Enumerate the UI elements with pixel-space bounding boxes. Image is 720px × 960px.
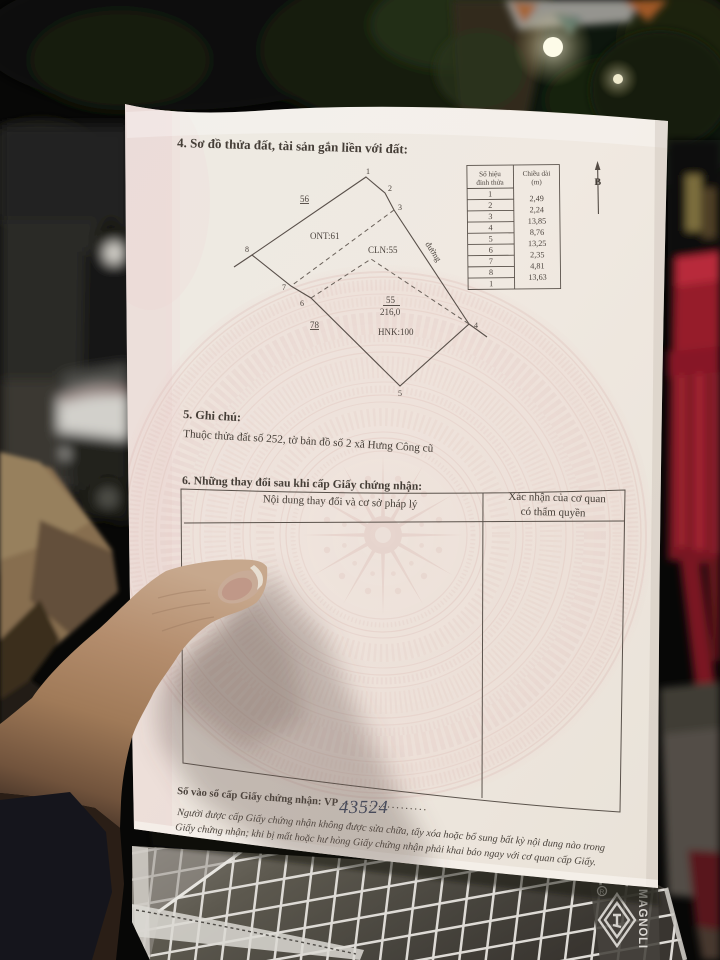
svg-text:4: 4 xyxy=(488,223,492,232)
svg-text:2: 2 xyxy=(488,201,492,210)
svg-text:Chiều dài: Chiều dài xyxy=(523,170,551,178)
svg-text:5: 5 xyxy=(398,389,402,398)
svg-text:4,81: 4,81 xyxy=(530,261,544,270)
svg-text:2,35: 2,35 xyxy=(530,250,544,259)
svg-text:1: 1 xyxy=(366,167,370,176)
svg-text:2: 2 xyxy=(388,184,392,193)
svg-text:HNK:100: HNK:100 xyxy=(378,327,414,337)
svg-text:8: 8 xyxy=(245,245,249,254)
svg-text:7: 7 xyxy=(489,257,493,266)
svg-text:13,63: 13,63 xyxy=(528,273,547,282)
svg-text:8: 8 xyxy=(489,268,493,277)
svg-text:CLN:55: CLN:55 xyxy=(368,245,398,255)
svg-text:4: 4 xyxy=(474,321,478,330)
svg-text:78: 78 xyxy=(310,320,320,330)
svg-text:1: 1 xyxy=(489,279,493,288)
svg-text:6: 6 xyxy=(300,299,304,308)
svg-text:55: 55 xyxy=(386,295,396,305)
svg-text:2,24: 2,24 xyxy=(530,205,544,214)
svg-text:5: 5 xyxy=(489,234,493,243)
svg-text:7: 7 xyxy=(282,283,286,292)
svg-text:B: B xyxy=(594,177,601,188)
svg-text:có thẩm quyền: có thẩm quyền xyxy=(521,506,587,520)
svg-text:56: 56 xyxy=(300,194,310,204)
svg-text:216,0: 216,0 xyxy=(380,307,401,317)
svg-text:ONT:61: ONT:61 xyxy=(310,231,340,241)
svg-text:1: 1 xyxy=(488,190,492,199)
svg-text:3: 3 xyxy=(488,212,492,221)
svg-text:6: 6 xyxy=(489,246,493,255)
svg-text:Số hiệu: Số hiệu xyxy=(479,170,501,178)
svg-text:Xác nhận của cơ quan: Xác nhận của cơ quan xyxy=(508,491,606,506)
svg-text:2,49: 2,49 xyxy=(529,194,543,203)
svg-text:đỉnh thửa: đỉnh thửa xyxy=(476,179,504,187)
svg-text:8,76: 8,76 xyxy=(530,228,544,237)
svg-text:13,85: 13,85 xyxy=(528,217,547,226)
svg-text:13,25: 13,25 xyxy=(528,239,547,248)
svg-text:(m): (m) xyxy=(531,178,542,186)
svg-text:3: 3 xyxy=(398,203,402,212)
